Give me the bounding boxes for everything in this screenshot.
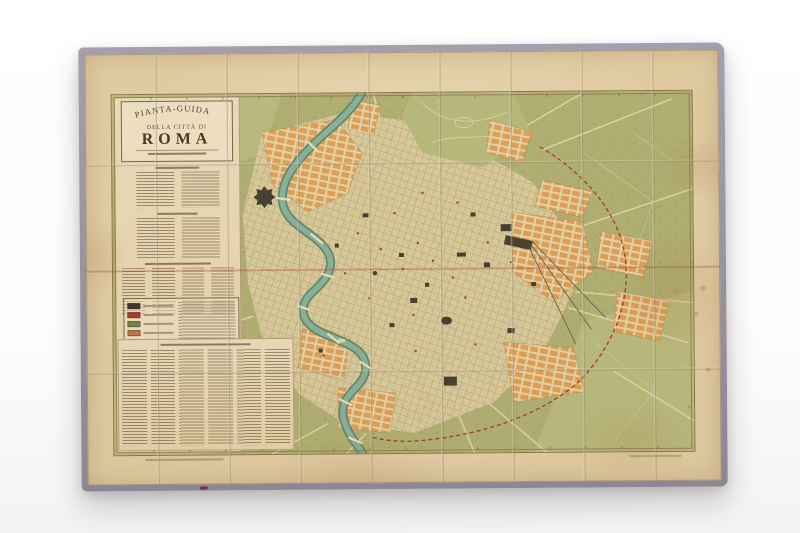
pantheon bbox=[373, 271, 377, 275]
red-mark-on-cloth bbox=[200, 487, 208, 490]
fox-spot bbox=[700, 286, 706, 291]
svg-text:PIANTA-GUIDA: PIANTA-GUIDA bbox=[134, 103, 212, 119]
title-main: ROMA bbox=[124, 131, 230, 148]
baths-of-caracalla bbox=[444, 377, 457, 386]
street-index-column bbox=[236, 349, 261, 445]
legend-swatch-black bbox=[127, 303, 140, 309]
street-index-column bbox=[179, 350, 204, 446]
street-index-header bbox=[161, 343, 251, 346]
title-rule bbox=[136, 149, 218, 151]
street-index-column bbox=[265, 349, 290, 445]
street-index bbox=[118, 338, 295, 451]
street-index-column bbox=[122, 350, 147, 446]
title-arc: PIANTA-GUIDA bbox=[124, 103, 234, 120]
quirinal-palace bbox=[457, 253, 466, 257]
index-column bbox=[181, 171, 219, 207]
street-index-column bbox=[150, 350, 175, 446]
fox-spot bbox=[694, 312, 698, 316]
map-frame: PIANTA-GUIDA DELLA CITTÀ DI ROMA bbox=[111, 90, 696, 457]
index-header bbox=[145, 263, 211, 266]
castel-santangelo-star bbox=[253, 186, 275, 208]
index-header bbox=[155, 167, 199, 169]
title-arc-text: PIANTA-GUIDA bbox=[134, 103, 212, 119]
paper: PIANTA-GUIDA DELLA CITTÀ DI ROMA bbox=[84, 50, 721, 486]
index-header bbox=[158, 213, 198, 215]
index-block-1 bbox=[121, 166, 233, 208]
index-block-2 bbox=[122, 212, 234, 258]
legend-swatch-green bbox=[127, 321, 140, 327]
legend-swatch-terracotta bbox=[127, 330, 140, 336]
capitoline bbox=[410, 298, 417, 303]
index-column bbox=[181, 217, 219, 257]
legend-swatch-red bbox=[127, 312, 140, 318]
photo-backdrop: { "sheet": { "kind": "folded antique cit… bbox=[0, 0, 800, 533]
title-box: PIANTA-GUIDA DELLA CITTÀ DI ROMA bbox=[121, 100, 233, 162]
map-sheet: PIANTA-GUIDA DELLA CITTÀ DI ROMA bbox=[78, 42, 727, 491]
